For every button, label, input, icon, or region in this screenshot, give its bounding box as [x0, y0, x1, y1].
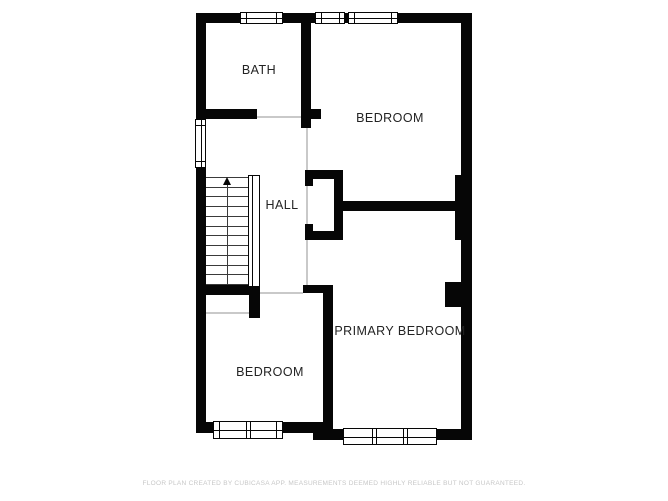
floor-plan: BATH BEDROOM HALL PRIMARY BEDROOM BEDROO… — [0, 0, 668, 501]
right-wall-chimney-block — [445, 282, 461, 307]
bath-bottom-wall — [196, 109, 257, 119]
right-wall-pilaster — [455, 175, 461, 240]
room-label-bedroom-bottom: BEDROOM — [236, 365, 304, 379]
closet-jamb-bottom — [305, 224, 313, 240]
bath-bottom-wall-stub — [311, 109, 321, 119]
room-label-primary-bedroom: PRIMARY BEDROOM — [334, 324, 465, 338]
hall-side-window — [195, 119, 206, 168]
closet-wall-right — [334, 170, 343, 240]
understair-side-wall — [249, 285, 260, 318]
room-label-bath: BATH — [242, 63, 276, 77]
closet-jamb-top — [305, 170, 313, 186]
footer-disclaimer: FLOOR PLAN CREATED BY CUBICASA APP. MEAS… — [0, 480, 668, 487]
bedroom-divider-wall-vertical — [323, 285, 333, 440]
bedroom-top-window-1 — [315, 12, 345, 24]
stair-up-arrow-icon — [223, 177, 231, 185]
bedroom-top-window-2 — [348, 12, 398, 24]
bedroom-bottom-window — [213, 421, 283, 439]
understair-doorway-line — [206, 312, 249, 314]
hall-bedroom-doorway-line — [257, 292, 303, 294]
stair-railing — [248, 175, 260, 287]
hall-open-boundary-line — [306, 128, 308, 285]
stair-center-line — [227, 185, 228, 285]
room-label-hall: HALL — [265, 198, 298, 212]
bath-window — [240, 12, 283, 24]
bath-right-wall — [301, 13, 311, 128]
primary-bedroom-window — [343, 428, 437, 445]
wall-left — [196, 13, 206, 433]
room-label-bedroom-top: BEDROOM — [356, 111, 424, 125]
bedroom-divider-wall-horizontal — [343, 201, 461, 211]
bath-doorway-line — [257, 116, 301, 118]
wall-right — [461, 13, 472, 440]
